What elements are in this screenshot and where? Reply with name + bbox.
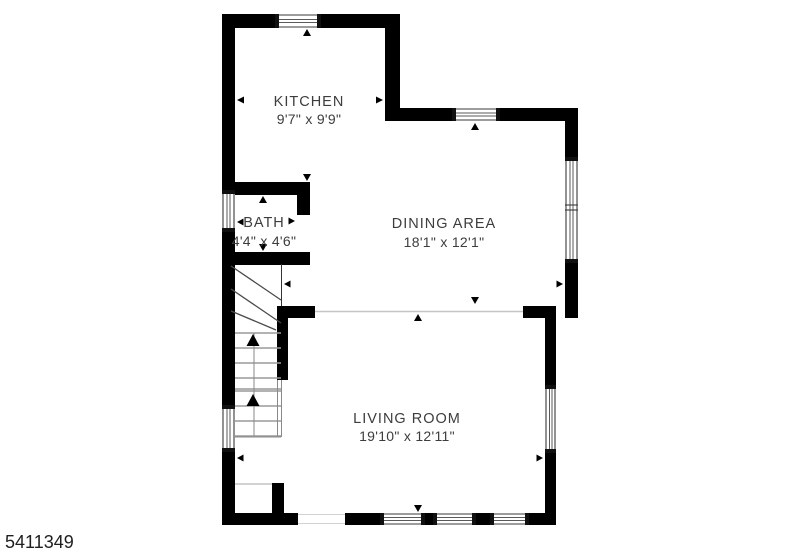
wall-segment: [565, 263, 578, 318]
measure-arrow-down-icon: [303, 174, 311, 181]
kitchen-name: KITCHEN: [274, 94, 345, 110]
stair-hatch: [231, 264, 282, 330]
exterior-walls: [222, 14, 578, 525]
wall-segment: [545, 306, 556, 385]
window: [222, 405, 235, 452]
window: [433, 513, 476, 525]
window: [565, 157, 578, 263]
measure-arrow-left-icon: [237, 97, 244, 104]
measure-arrow-up-icon: [259, 196, 267, 203]
floorplan-canvas: KITCHEN 9'7" x 9'9" DINING AREA 18'1" x …: [0, 0, 800, 558]
dining-dimensions: 18'1" x 12'1": [404, 234, 485, 250]
wall-segment: [385, 108, 452, 121]
room-label-kitchen: KITCHEN 9'7" x 9'9": [274, 94, 345, 127]
wall-segment: [222, 14, 235, 190]
stair-up-arrow-icon: [247, 334, 260, 346]
measure-arrow-up-icon: [414, 314, 422, 321]
measure-arrow-left-icon: [237, 455, 244, 462]
measure-arrow-up-icon: [303, 29, 311, 36]
measure-arrow-down-icon: [414, 505, 422, 512]
measure-arrow-left-icon: [284, 281, 291, 288]
window: [490, 513, 529, 525]
measure-arrow-right-icon: [376, 97, 383, 104]
wall-segment: [297, 182, 310, 215]
wall-segment: [222, 513, 298, 525]
dining-name: DINING AREA: [392, 216, 496, 232]
window: [275, 14, 321, 28]
wall-segment: [345, 513, 380, 525]
room-label-living: LIVING ROOM 19'10" x 12'11": [353, 411, 461, 444]
wall-segment: [476, 513, 490, 525]
measure-arrow-right-icon: [537, 455, 544, 462]
stair-treads: [235, 333, 282, 437]
wall-segment: [272, 483, 284, 513]
window: [222, 190, 235, 232]
room-label-dining: DINING AREA 18'1" x 12'1": [392, 216, 496, 250]
measure-arrow-down-icon: [471, 297, 479, 304]
wall-segment: [529, 513, 556, 525]
bath-name: BATH: [243, 215, 285, 231]
window: [380, 513, 425, 525]
measure-arrow-right-icon: [557, 281, 564, 288]
wall-segment: [385, 14, 400, 121]
dining-measure-arrows: [284, 123, 563, 304]
living-name: LIVING ROOM: [353, 411, 461, 427]
kitchen-dimensions: 9'7" x 9'9": [277, 111, 342, 127]
wall-segment: [222, 252, 310, 265]
wall-segment: [425, 513, 433, 525]
wall-segment: [565, 108, 578, 157]
bath-dimensions: 4'4" x 4'6": [232, 233, 297, 249]
floorplan-drawing: KITCHEN 9'7" x 9'9" DINING AREA 18'1" x …: [0, 0, 800, 558]
window: [545, 385, 556, 453]
living-dimensions: 19'10" x 12'11": [359, 428, 455, 444]
listing-id: 5411349: [5, 532, 74, 552]
window: [452, 108, 500, 121]
wall-segment: [222, 14, 275, 28]
stair-up-arrow-icon: [247, 394, 260, 406]
measure-arrow-up-icon: [471, 123, 479, 130]
staircase: [231, 264, 282, 437]
measure-arrow-right-icon: [289, 218, 296, 225]
wall-segment: [277, 306, 288, 380]
wall-segment: [222, 182, 310, 195]
